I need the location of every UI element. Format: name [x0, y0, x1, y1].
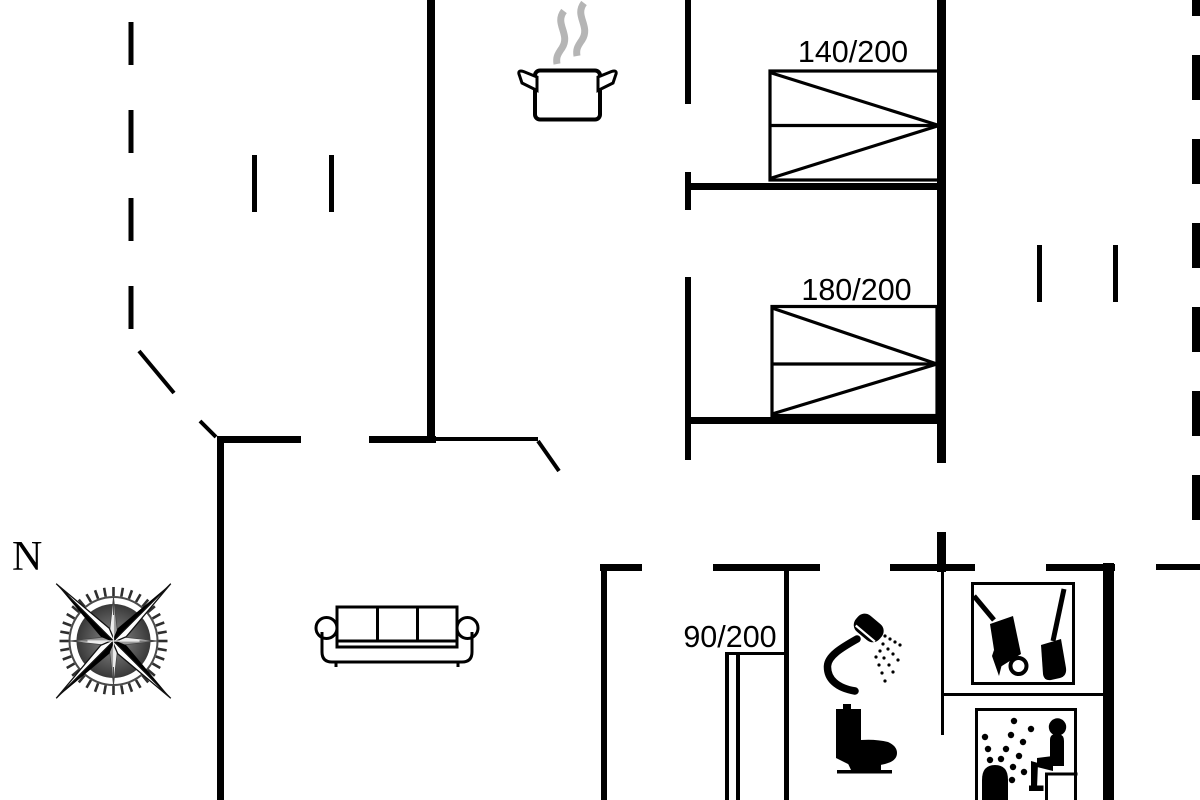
svg-text:140/200: 140/200: [798, 35, 908, 69]
svg-text:N: N: [12, 534, 42, 580]
svg-text:180/200: 180/200: [801, 273, 911, 307]
svg-text:90/200: 90/200: [683, 620, 776, 654]
